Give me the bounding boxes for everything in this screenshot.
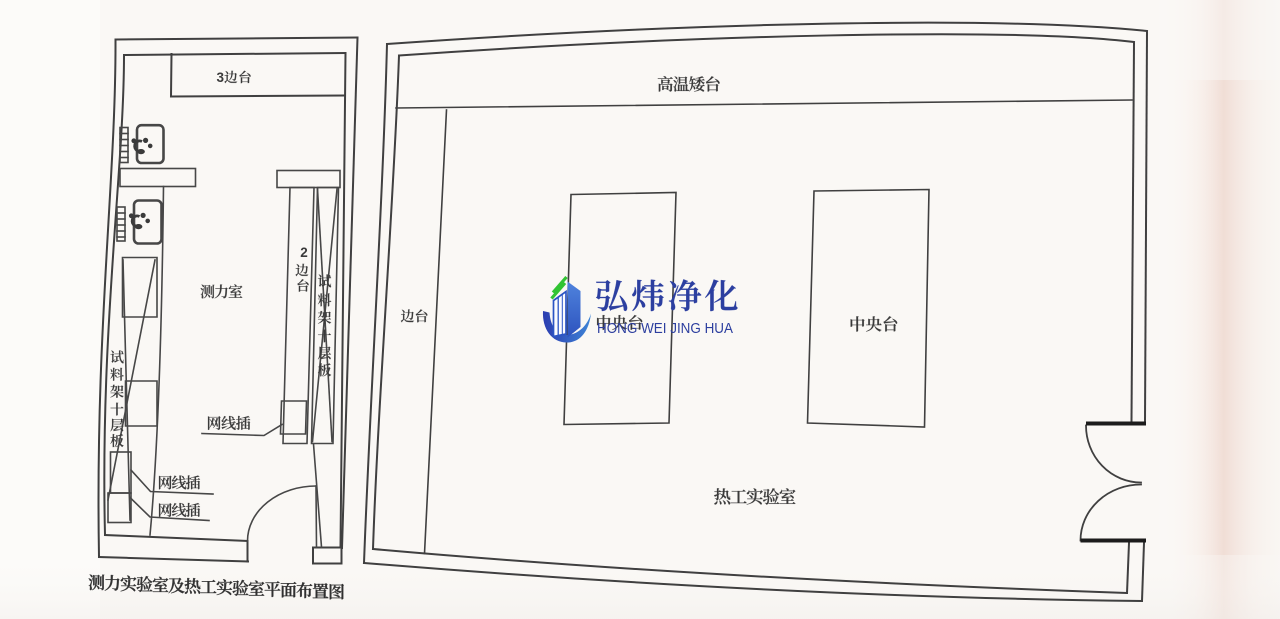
svg-text:2: 2 (300, 245, 308, 260)
svg-text:3: 3 (217, 70, 225, 85)
svg-text:HONG WEI JING HUA: HONG WEI JING HUA (597, 321, 733, 337)
